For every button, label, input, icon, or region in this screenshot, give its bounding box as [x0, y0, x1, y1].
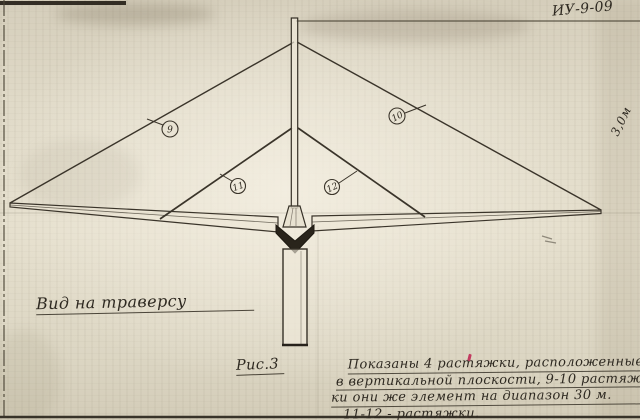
- figure-label: Рис.3: [236, 356, 285, 376]
- note-line-4: 11-12 - растяжки.: [343, 405, 493, 420]
- callout-9-number: 9: [167, 126, 173, 136]
- mast-upper-section: [291, 18, 297, 208]
- callout-12-leader: [339, 171, 357, 183]
- guy-wire-inner-right: [298, 128, 425, 217]
- callout-11-leader: [220, 174, 232, 181]
- mast-junction-collar: [283, 206, 306, 227]
- guy-wire-outer-left: [10, 42, 294, 203]
- traverse-left-beam-edge-line: [10, 205, 278, 223]
- guy-wire-inner-left: [160, 128, 292, 219]
- guy-wire-outer-right: [297, 42, 601, 210]
- ink-specks: [542, 236, 556, 243]
- callout-11-number: 11: [231, 181, 245, 194]
- mast-lower-section: [283, 249, 307, 345]
- note-block: Показаны 4 растяжки, расположенные в вер…: [330, 354, 640, 420]
- scanned-drawing-page: 9 10 11 12 ИУ-9-09 3,0м Вид на траверсу …: [0, 0, 640, 420]
- note-line-3: ки они же элемент на диапазон 30 м.: [331, 387, 640, 407]
